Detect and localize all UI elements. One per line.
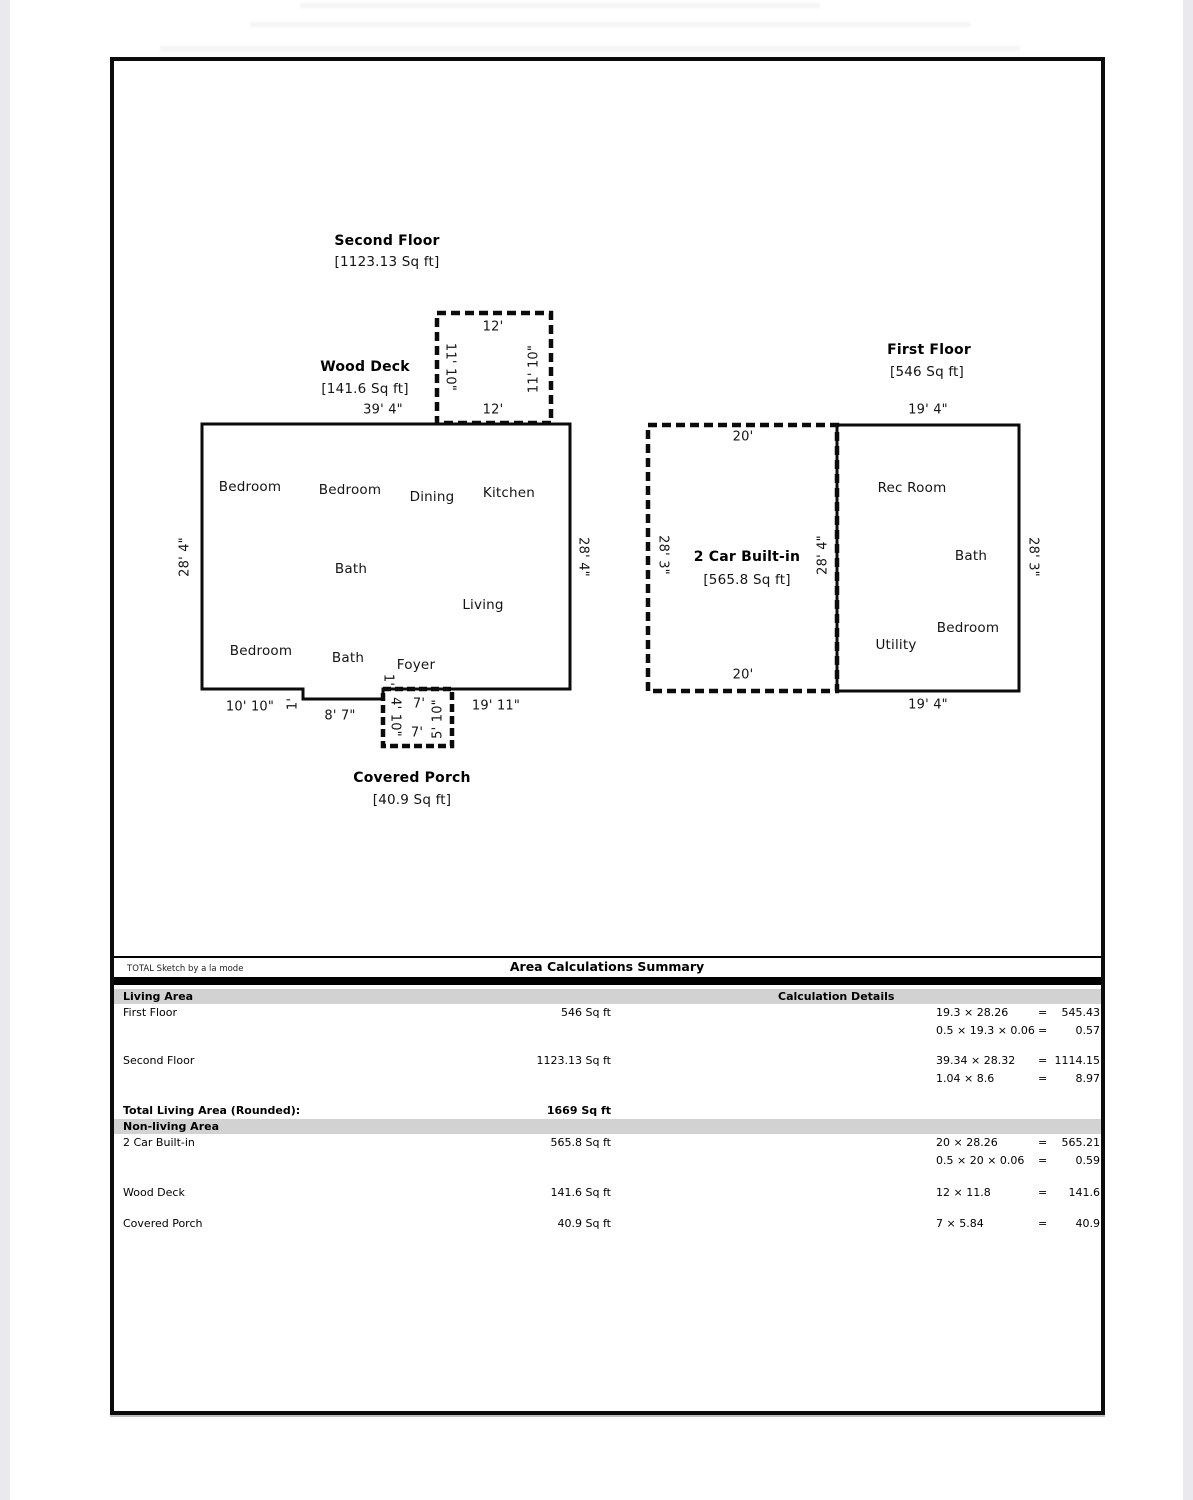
room-label: Kitchen	[483, 485, 535, 501]
room-label: Utility	[875, 637, 916, 653]
living-area-band: Living Area Calculation Details	[114, 989, 1101, 1004]
living-area-header: Living Area	[123, 990, 193, 1004]
room-label: Bath	[332, 650, 364, 666]
second-floor-area: [1123.13 Sq ft]	[335, 254, 440, 270]
porch-right-dim: 5' 10"	[431, 699, 446, 739]
table-top-rule	[114, 956, 1101, 958]
calc-formula: 1.04 × 8.6	[936, 1072, 994, 1086]
covered-porch-title: Covered Porch	[353, 770, 470, 786]
calc-result: 141.6	[1022, 1186, 1100, 1200]
table-row-area: 40.9 Sq ft	[430, 1217, 611, 1231]
wood-deck-title: Wood Deck	[320, 359, 410, 375]
deck-top-dim: 12'	[483, 320, 504, 335]
porch-left-dim: 4' 10"	[388, 697, 403, 737]
bottom-right-dim: 19' 11"	[472, 699, 520, 714]
calc-formula: 19.3 × 28.26	[936, 1006, 1008, 1020]
room-label: Bedroom	[937, 620, 999, 636]
room-label: Rec Room	[878, 480, 947, 496]
table-row-name: First Floor	[123, 1006, 177, 1020]
first-floor-right-dim: 28' 3"	[1026, 537, 1041, 577]
room-label: Bedroom	[319, 482, 381, 498]
table-row-name: Second Floor	[123, 1054, 194, 1068]
calc-formula: 0.5 × 19.3 × 0.06	[936, 1024, 1035, 1038]
calc-result: 8.97	[1022, 1072, 1100, 1086]
nonliving-area-header: Non-living Area	[123, 1120, 219, 1134]
room-label: Bath	[335, 561, 367, 577]
calc-result: 1114.15	[1022, 1054, 1100, 1068]
garage-title: 2 Car Built-in	[694, 549, 800, 565]
garage-area: [565.8 Sq ft]	[703, 572, 790, 588]
garage-top-dim: 20'	[733, 430, 754, 445]
calc-result: 0.59	[1022, 1154, 1100, 1168]
room-label: Dining	[410, 489, 455, 505]
first-floor-bottom-dim: 19' 4"	[908, 698, 948, 713]
garage-bottom-dim: 20'	[733, 668, 754, 683]
calc-formula: 0.5 × 20 × 0.06	[936, 1154, 1024, 1168]
second-floor-width-dim: 39' 4"	[363, 403, 403, 418]
bottom-step-dim: 1'	[286, 698, 301, 710]
room-label: Living	[462, 597, 503, 613]
second-floor-left-dim: 28' 4"	[178, 537, 193, 577]
calc-formula: 39.34 × 28.32	[936, 1054, 1015, 1068]
room-label: Foyer	[397, 657, 435, 673]
deck-bottom-dim: 12'	[483, 403, 504, 418]
calc-result: 565.21	[1022, 1136, 1100, 1150]
calc-result: 0.57	[1022, 1024, 1100, 1038]
page-border-frame	[110, 57, 1105, 1415]
first-floor-title: First Floor	[887, 342, 971, 358]
room-label: Bedroom	[219, 479, 281, 495]
table-row-area: 565.8 Sq ft	[430, 1136, 611, 1150]
nonliving-area-band: Non-living Area	[114, 1119, 1101, 1134]
scan-artifact	[300, 3, 820, 8]
table-row-name: 2 Car Built-in	[123, 1136, 195, 1150]
bottom-mid-dim: 8' 7"	[324, 709, 355, 724]
total-living-label: Total Living Area (Rounded):	[123, 1104, 300, 1118]
porch-bottom-dim: 7'	[411, 726, 423, 741]
room-label: Bedroom	[230, 643, 292, 659]
viewer-background: Second Floor [1123.13 Sq ft] Wood Deck […	[0, 0, 1193, 1500]
table-row-area: 1123.13 Sq ft	[430, 1054, 611, 1068]
total-living-value: 1669 Sq ft	[430, 1104, 611, 1118]
second-floor-title: Second Floor	[334, 233, 439, 249]
table-header-bar	[114, 977, 1101, 985]
calc-details-header: Calculation Details	[778, 990, 894, 1004]
table-row-area: 546 Sq ft	[430, 1006, 611, 1020]
shared-wall-dim: 28' 4"	[816, 535, 831, 575]
table-row-name: Covered Porch	[123, 1217, 203, 1231]
porch-top-dim: 7'	[413, 697, 425, 712]
sketch-page: Second Floor [1123.13 Sq ft] Wood Deck […	[10, 0, 1183, 1500]
calc-result: 40.9	[1022, 1217, 1100, 1231]
calc-result: 545.43	[1022, 1006, 1100, 1020]
calc-formula: 20 × 28.26	[936, 1136, 998, 1150]
room-label: Bath	[955, 548, 987, 564]
deck-right-dim: 11' 10"	[527, 345, 542, 393]
table-row-area: 141.6 Sq ft	[430, 1186, 611, 1200]
bottom-left-dim: 10' 10"	[226, 700, 274, 715]
table-row-name: Wood Deck	[123, 1186, 185, 1200]
table-title: Area Calculations Summary	[510, 960, 704, 974]
first-floor-area: [546 Sq ft]	[890, 364, 964, 380]
deck-left-dim: 11' 10"	[443, 343, 458, 391]
covered-porch-area: [40.9 Sq ft]	[373, 792, 452, 808]
brand-text: TOTAL Sketch by a la mode	[127, 962, 243, 976]
wood-deck-area: [141.6 Sq ft]	[321, 381, 408, 397]
porch-step-dim: 1'	[381, 674, 396, 686]
scan-artifact	[250, 22, 970, 27]
calc-formula: 7 × 5.84	[936, 1217, 984, 1231]
scan-artifact	[160, 46, 1020, 51]
second-floor-right-dim: 28' 4"	[576, 537, 591, 577]
first-floor-top-dim: 19' 4"	[908, 403, 948, 418]
garage-left-dim: 28' 3"	[656, 535, 671, 575]
calc-formula: 12 × 11.8	[936, 1186, 991, 1200]
